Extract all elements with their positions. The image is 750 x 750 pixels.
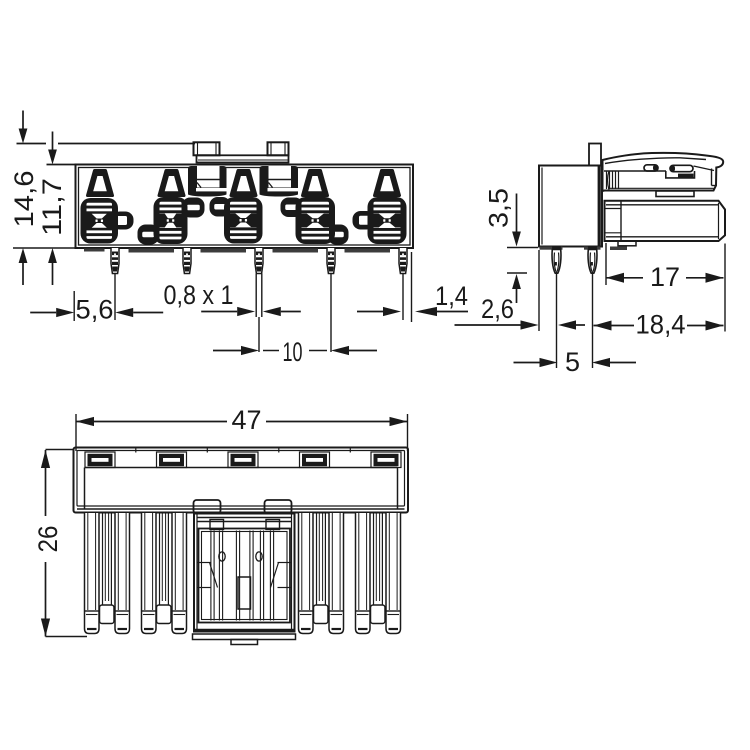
svg-text:3,5: 3,5 (484, 188, 514, 228)
svg-text:11,7: 11,7 (37, 178, 67, 236)
svg-text:5: 5 (565, 347, 580, 377)
svg-text:18,4: 18,4 (636, 310, 686, 340)
svg-text:17: 17 (650, 262, 680, 292)
svg-text:2,6: 2,6 (481, 294, 514, 324)
svg-text:1,4: 1,4 (435, 281, 468, 311)
svg-text:14,6: 14,6 (9, 171, 39, 228)
svg-text:5,6: 5,6 (76, 295, 114, 325)
svg-text:0,8 x 1: 0,8 x 1 (164, 280, 234, 310)
svg-text:10: 10 (283, 337, 303, 367)
svg-text:26: 26 (33, 526, 63, 553)
svg-text:47: 47 (231, 405, 261, 435)
